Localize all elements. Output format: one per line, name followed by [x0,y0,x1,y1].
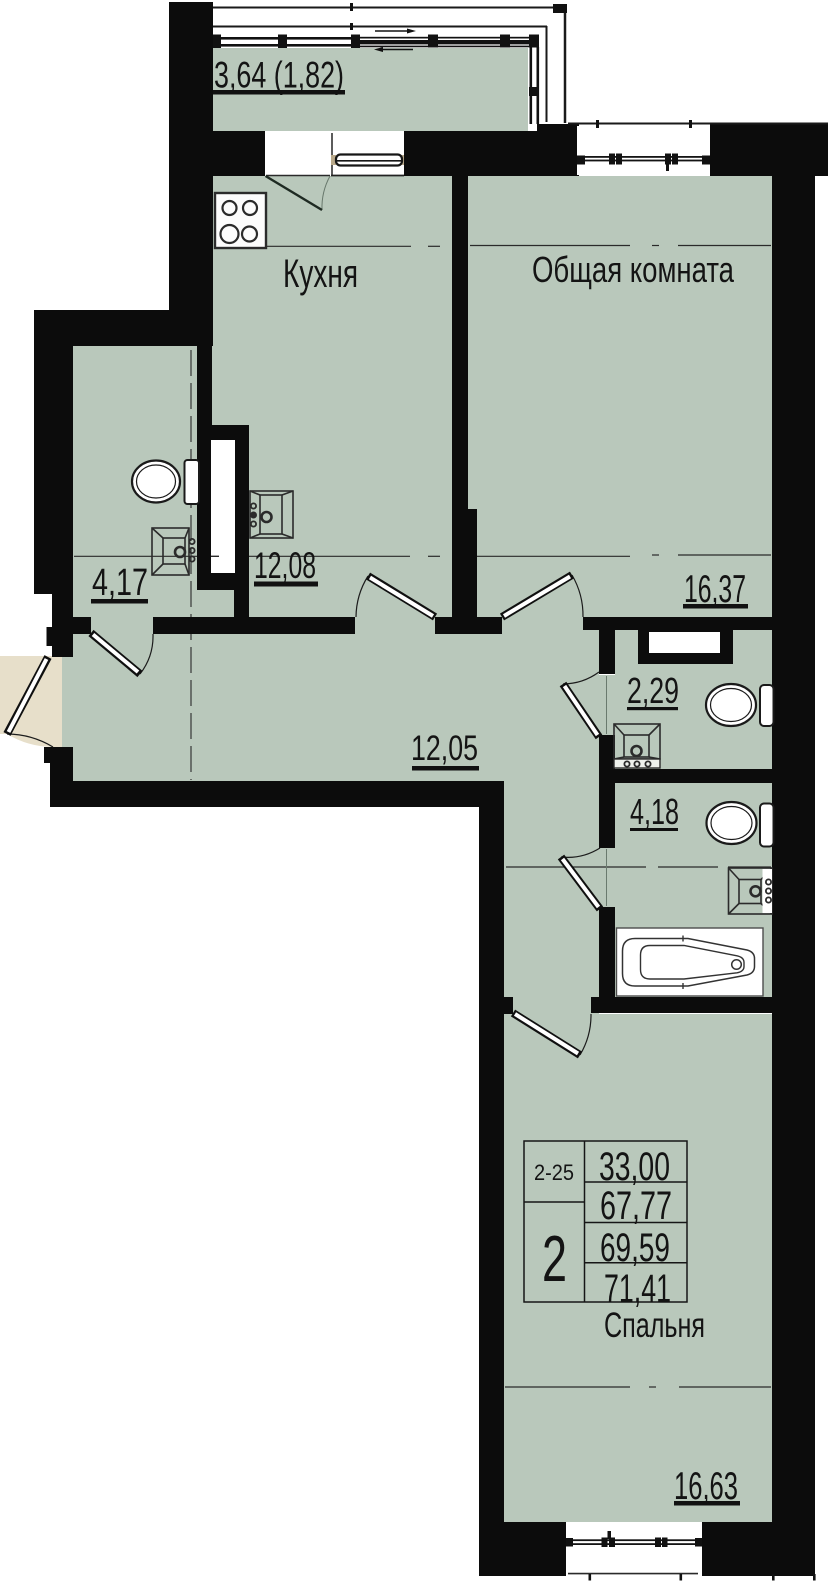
svg-text:12,05: 12,05 [411,729,478,768]
svg-text:12,08: 12,08 [254,545,316,586]
svg-text:69,59: 69,59 [600,1226,670,1270]
svg-text:Спальня: Спальня [604,1306,705,1345]
svg-text:3,64 (1,82): 3,64 (1,82) [214,54,344,96]
svg-text:2-25: 2-25 [534,1160,574,1185]
svg-text:2: 2 [542,1222,567,1295]
svg-text:Кухня: Кухня [283,252,358,296]
svg-text:67,77: 67,77 [600,1184,672,1228]
svg-text:Общая комната: Общая комната [532,249,735,290]
svg-text:4,17: 4,17 [92,562,148,604]
svg-text:33,00: 33,00 [599,1145,670,1189]
svg-text:71,41: 71,41 [604,1267,671,1311]
svg-text:4,18: 4,18 [630,791,679,832]
svg-text:2,29: 2,29 [627,670,679,711]
